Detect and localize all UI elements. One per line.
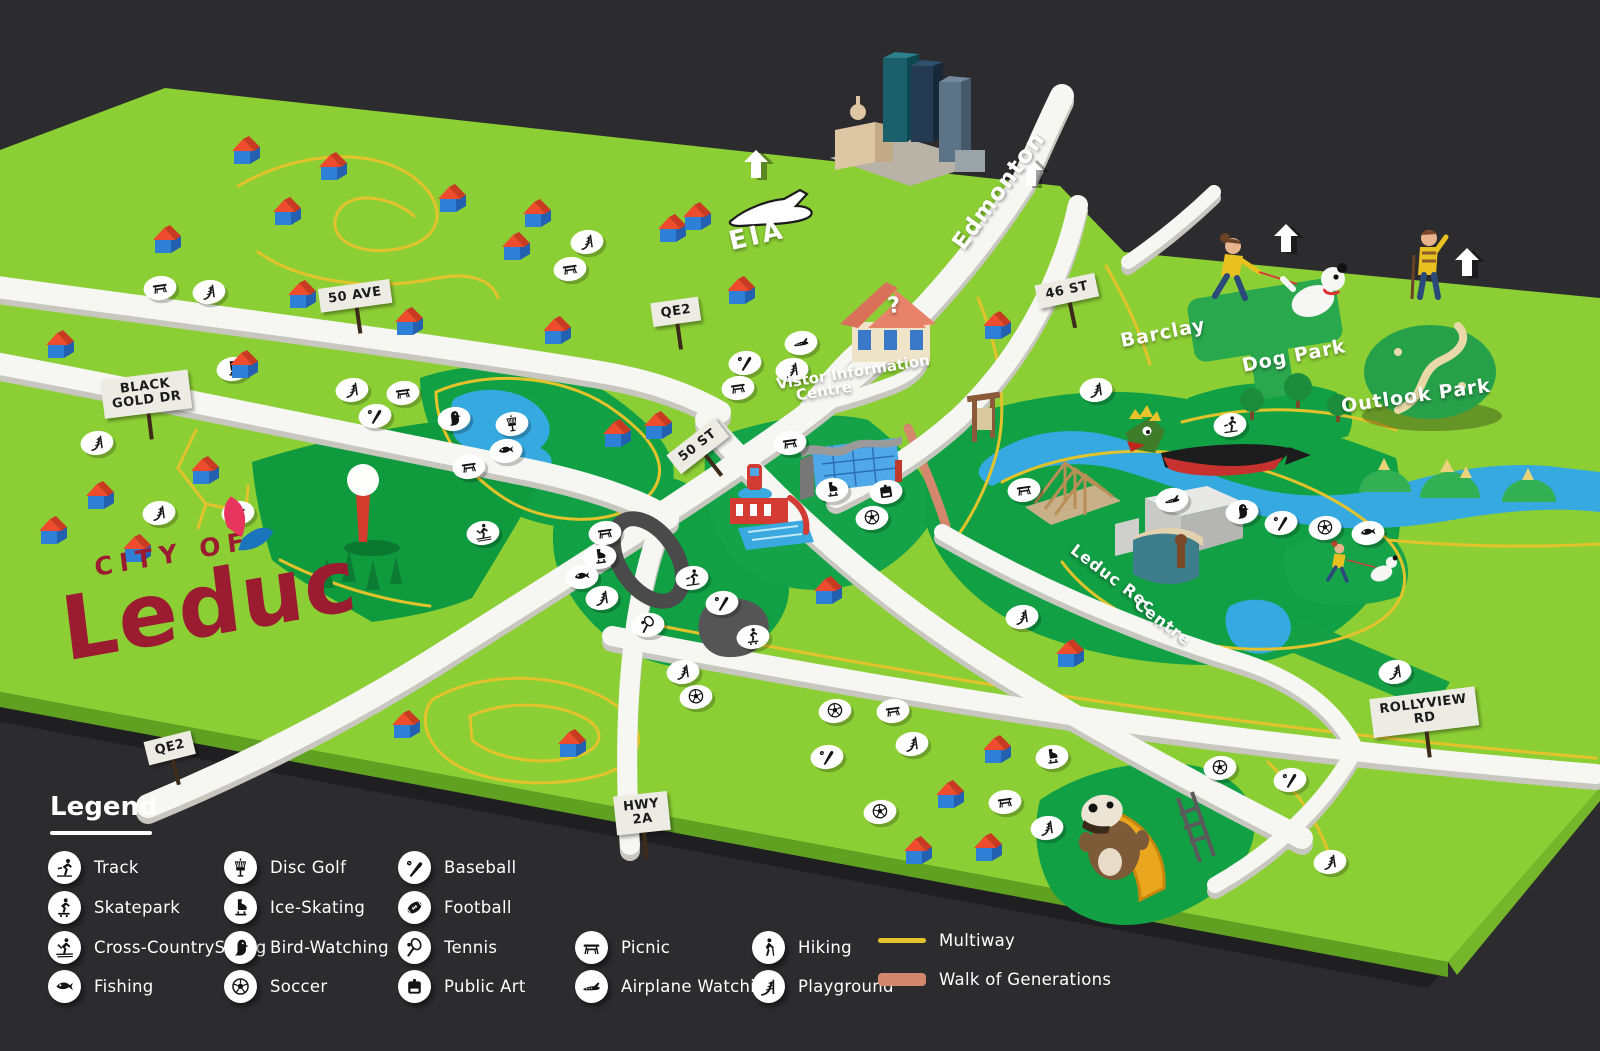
direction-arrow-icon: [1274, 224, 1304, 254]
leduc-map-scene: [0, 0, 1600, 1051]
edmonton-skyline: [830, 52, 985, 186]
direction-arrow-icon: [1455, 248, 1485, 278]
leduc-map-page: { "background_color": "#2c2c2e", "logo":…: [0, 0, 1600, 1051]
